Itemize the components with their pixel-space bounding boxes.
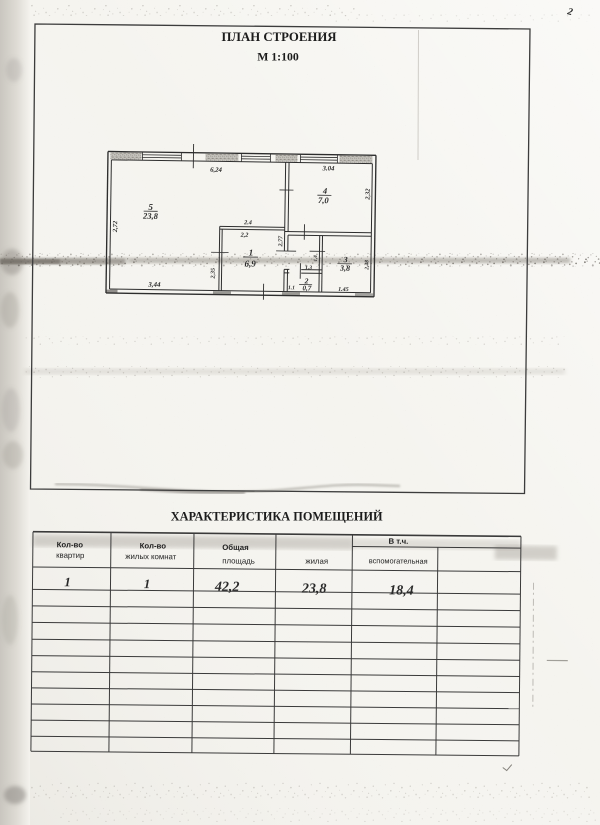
svg-text:1.1: 1.1 [288, 285, 295, 291]
svg-text:2,2: 2,2 [240, 232, 249, 239]
svg-text:2,77: 2,77 [278, 235, 284, 248]
svg-text:2.4: 2.4 [243, 219, 252, 226]
svg-text:2,48: 2,48 [364, 260, 370, 271]
svg-text:М 1:100: М 1:100 [257, 50, 299, 64]
svg-text:площадь: площадь [222, 556, 255, 565]
svg-text:В т.ч.: В т.ч. [388, 537, 408, 546]
svg-text:23,8: 23,8 [301, 582, 327, 597]
svg-text:Общая: Общая [222, 543, 249, 552]
svg-text:42,2: 42,2 [214, 580, 240, 595]
svg-text:квартир: квартир [56, 551, 85, 560]
svg-text:18,4: 18,4 [389, 583, 414, 598]
svg-text:Кол-во: Кол-во [140, 541, 167, 550]
svg-text:ХАРАКТЕРИСТИКА ПОМЕЩЕНИЙ: ХАРАКТЕРИСТИКА ПОМЕЩЕНИЙ [171, 509, 383, 523]
svg-text:1: 1 [64, 574, 71, 589]
svg-text:Кол-во: Кол-во [57, 540, 84, 549]
svg-text:жилая: жилая [305, 557, 328, 566]
svg-text:3,44: 3,44 [147, 281, 161, 289]
svg-text:ПЛАН СТРОЕНИЯ: ПЛАН СТРОЕНИЯ [221, 30, 337, 44]
svg-text:3.04: 3.04 [321, 165, 335, 172]
svg-text:вспомогательная: вспомогательная [369, 556, 428, 566]
svg-text:6,9: 6,9 [245, 258, 257, 268]
svg-text:6,24: 6,24 [210, 167, 223, 174]
svg-text:2,32: 2,32 [365, 188, 372, 201]
svg-text:1,3: 1,3 [305, 265, 312, 271]
svg-text:1,4: 1,4 [314, 255, 319, 262]
svg-text:1: 1 [144, 576, 151, 591]
svg-text:2,35: 2,35 [211, 268, 217, 280]
svg-text:23,8: 23,8 [142, 211, 159, 221]
svg-text:1.45: 1.45 [338, 287, 349, 293]
svg-text:0,7: 0,7 [303, 284, 312, 292]
svg-text:3,8: 3,8 [339, 264, 350, 273]
svg-text:жилых комнат: жилых комнат [125, 552, 177, 561]
svg-text:2,72: 2,72 [112, 220, 119, 233]
svg-text:1: 1 [249, 248, 254, 258]
svg-text:7,0: 7,0 [318, 195, 330, 205]
